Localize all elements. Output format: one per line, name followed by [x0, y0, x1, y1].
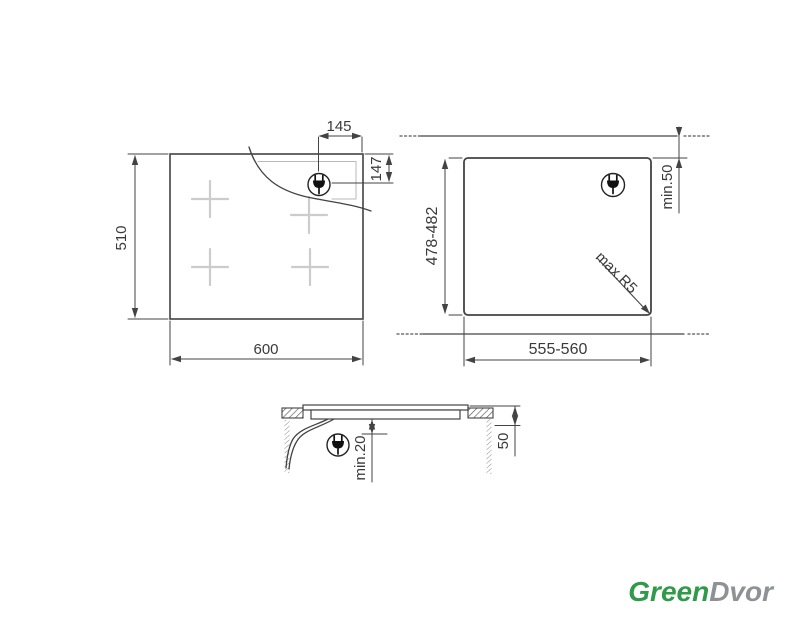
- logo-green-text: Green: [628, 576, 709, 607]
- cabinet-cut-left: [285, 420, 290, 473]
- brand-logo: GreenDvor: [628, 576, 773, 608]
- dim-label-478-482: 478-482: [424, 207, 441, 266]
- hob-glass-section: [303, 405, 468, 410]
- dim-510: [128, 154, 168, 319]
- dim-label-min50: min.50: [659, 164, 676, 209]
- dim-label-145: 145: [326, 118, 351, 135]
- hob-body-section: [311, 410, 460, 419]
- dim-label-600: 600: [253, 341, 278, 358]
- top-view-figure: 510 600 145 147: [113, 118, 393, 365]
- cutout-view-figure: 478-482 555-560 min.50 max.R5: [397, 127, 710, 366]
- dim-label-50: 50: [495, 433, 512, 450]
- section-view-figure: min.20 50: [282, 405, 520, 482]
- logo-gray-text: Dvor: [709, 576, 773, 607]
- power-plug-icon: [308, 174, 330, 196]
- power-plug-icon: [327, 434, 349, 456]
- dim-478-482: [442, 158, 462, 315]
- installation-diagram-page: 510 600 145 147: [0, 0, 789, 640]
- dim-label-510: 510: [113, 225, 130, 250]
- installation-diagram: 510 600 145 147: [0, 0, 789, 640]
- dim-label-min20: min.20: [352, 435, 369, 480]
- hob-outline: [170, 154, 363, 319]
- power-plug-icon: [602, 174, 625, 197]
- dim-label-147: 147: [368, 156, 385, 181]
- worktop-section-right: [468, 408, 493, 418]
- worktop-section-left: [282, 408, 303, 418]
- cabinet-cut-right: [487, 419, 492, 474]
- dim-label-555-560: 555-560: [529, 341, 588, 358]
